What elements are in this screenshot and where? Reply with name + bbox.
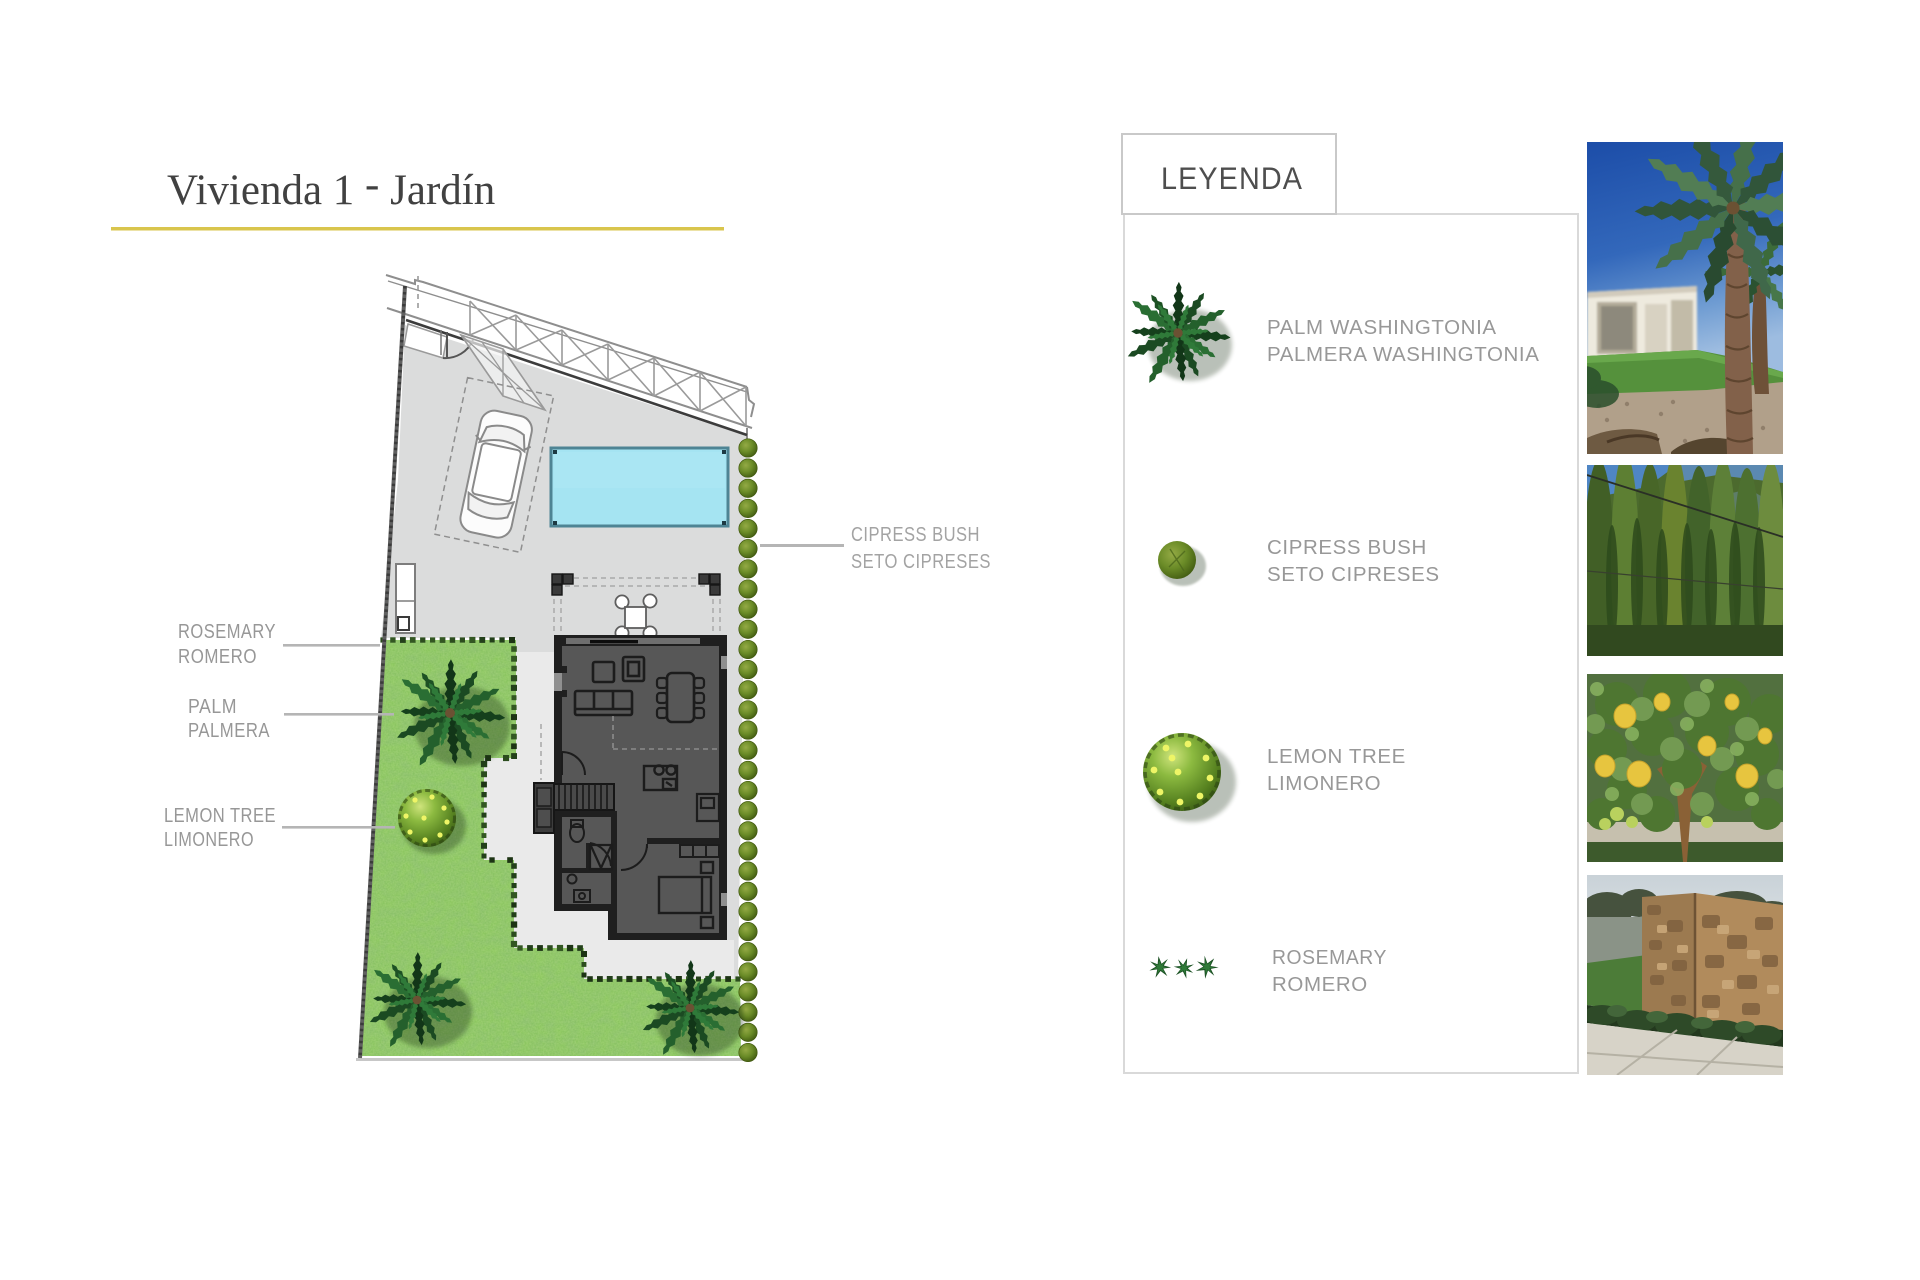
svg-text:LEMON TREE: LEMON TREE	[1267, 745, 1406, 768]
svg-text:Vivienda 1 - Jardín: Vivienda 1 - Jardín	[167, 161, 495, 214]
svg-text:LEYENDA: LEYENDA	[1161, 160, 1303, 196]
svg-text:ROMERO: ROMERO	[1272, 973, 1368, 996]
svg-text:PALMERA WASHINGTONIA: PALMERA WASHINGTONIA	[1267, 343, 1539, 366]
svg-text:CIPRESS BUSH: CIPRESS BUSH	[851, 523, 980, 546]
svg-text:ROMERO: ROMERO	[178, 645, 257, 668]
svg-text:SETO CIPRESES: SETO CIPRESES	[1267, 563, 1440, 586]
svg-text:PALM: PALM	[188, 695, 237, 718]
svg-text:LIMONERO: LIMONERO	[164, 828, 254, 851]
svg-text:ROSEMARY: ROSEMARY	[178, 620, 276, 643]
svg-text:ROSEMARY: ROSEMARY	[1272, 946, 1387, 969]
svg-text:PALMERA: PALMERA	[188, 719, 270, 742]
svg-text:LEMON TREE: LEMON TREE	[164, 804, 276, 827]
svg-text:PALM WASHINGTONIA: PALM WASHINGTONIA	[1267, 316, 1497, 339]
svg-text:LIMONERO: LIMONERO	[1267, 772, 1381, 795]
svg-text:CIPRESS BUSH: CIPRESS BUSH	[1267, 536, 1427, 559]
svg-text:SETO CIPRESES: SETO CIPRESES	[851, 550, 991, 573]
